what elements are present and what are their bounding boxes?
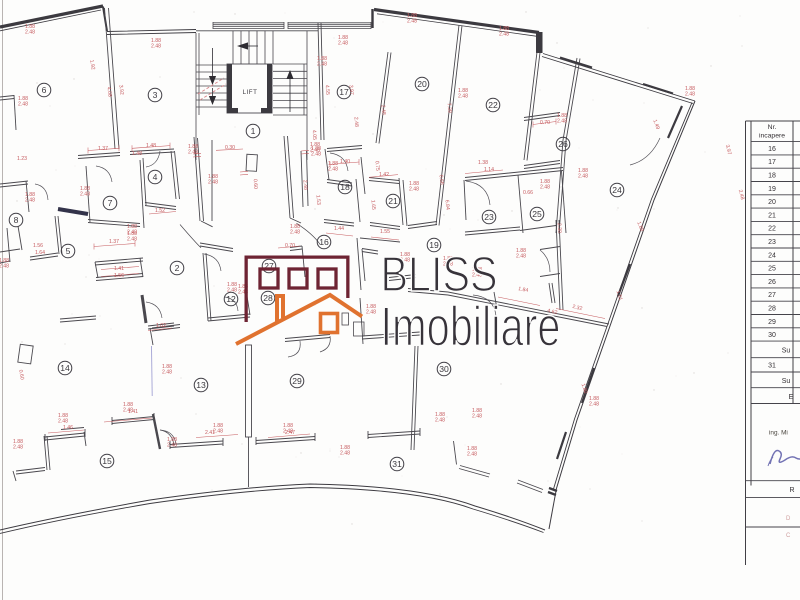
svg-text:4.05: 4.05	[311, 130, 318, 141]
svg-text:2.48: 2.48	[302, 180, 309, 191]
svg-text:3.97: 3.97	[348, 85, 355, 96]
svg-text:2.30: 2.30	[556, 223, 563, 234]
svg-text:1.55: 1.55	[380, 229, 390, 235]
svg-text:2.32: 2.32	[572, 304, 583, 312]
svg-text:0.60: 0.60	[17, 369, 25, 380]
svg-text:1.64: 1.64	[35, 250, 45, 256]
svg-text:8: 8	[14, 215, 19, 225]
svg-text:1.80: 1.80	[580, 383, 589, 395]
svg-text:16: 16	[319, 237, 329, 247]
svg-text:0.66: 0.66	[523, 190, 533, 196]
svg-text:23: 23	[484, 212, 494, 222]
svg-text:1.48: 1.48	[146, 143, 156, 149]
svg-text:2.48: 2.48	[353, 117, 360, 128]
svg-text:1.23: 1.23	[17, 156, 27, 162]
svg-text:17: 17	[339, 87, 349, 97]
svg-text:Su: Su	[782, 348, 791, 355]
svg-text:5: 5	[66, 246, 71, 256]
svg-text:31: 31	[392, 459, 402, 469]
svg-text:4.55: 4.55	[324, 85, 331, 96]
svg-text:R: R	[789, 487, 794, 494]
svg-text:20: 20	[417, 79, 427, 89]
svg-text:21: 21	[388, 196, 398, 206]
svg-text:0.30: 0.30	[225, 145, 235, 151]
svg-text:ing. Mi: ing. Mi	[769, 430, 788, 437]
svg-text:26: 26	[558, 139, 568, 149]
svg-text:1.48: 1.48	[132, 151, 142, 157]
svg-text:1.65: 1.65	[370, 200, 377, 211]
svg-text:2.48: 2.48	[379, 105, 386, 116]
svg-text:16: 16	[768, 146, 776, 153]
svg-text:Nr.: Nr.	[768, 124, 777, 131]
svg-text:29: 29	[768, 319, 776, 326]
svg-text:1.14: 1.14	[484, 167, 494, 173]
svg-text:3: 3	[153, 90, 158, 100]
svg-text:1.92: 1.92	[88, 59, 96, 70]
svg-text:1.49: 1.49	[651, 119, 660, 131]
svg-text:30: 30	[768, 332, 776, 339]
svg-text:1.41: 1.41	[114, 266, 124, 272]
svg-text:1.56: 1.56	[33, 243, 43, 249]
svg-text:2: 2	[175, 263, 180, 273]
svg-text:4.08: 4.08	[105, 86, 112, 97]
svg-text:3.97: 3.97	[724, 144, 732, 155]
svg-text:1.38: 1.38	[478, 160, 488, 166]
svg-text:22: 22	[768, 226, 776, 233]
svg-text:24: 24	[768, 252, 776, 259]
svg-text:0.75: 0.75	[374, 161, 381, 172]
svg-text:27: 27	[768, 292, 776, 299]
svg-text:0.70: 0.70	[285, 243, 295, 249]
svg-text:1.84: 1.84	[518, 286, 529, 294]
svg-text:4: 4	[153, 172, 158, 182]
svg-text:13: 13	[196, 380, 206, 390]
svg-text:26: 26	[768, 279, 776, 286]
svg-text:17: 17	[768, 159, 776, 166]
svg-text:28: 28	[768, 306, 776, 313]
svg-text:7.39: 7.39	[445, 103, 452, 114]
svg-text:18: 18	[340, 182, 350, 192]
svg-text:12: 12	[226, 294, 236, 304]
svg-text:1.44: 1.44	[334, 226, 344, 232]
svg-text:28: 28	[263, 293, 273, 303]
svg-text:1.56: 1.56	[114, 273, 124, 279]
svg-text:25: 25	[768, 266, 776, 273]
svg-text:incapere: incapere	[759, 133, 785, 140]
svg-text:25: 25	[532, 209, 542, 219]
svg-text:Imobiliare: Imobiliare	[381, 295, 561, 358]
svg-text:23: 23	[768, 239, 776, 246]
svg-text:22: 22	[488, 100, 498, 110]
svg-text:1.37: 1.37	[109, 239, 119, 245]
svg-text:0.60: 0.60	[252, 179, 259, 190]
svg-text:6.84: 6.84	[443, 200, 450, 211]
svg-text:31: 31	[768, 363, 776, 370]
svg-text:14: 14	[60, 363, 70, 373]
svg-text:18: 18	[768, 173, 776, 180]
svg-text:C: C	[786, 533, 791, 539]
svg-text:19: 19	[768, 186, 776, 193]
svg-text:E: E	[789, 394, 794, 401]
svg-text:1: 1	[251, 126, 256, 136]
svg-text:1.46: 1.46	[63, 425, 73, 431]
svg-text:24: 24	[612, 185, 622, 195]
svg-text:LIFT: LIFT	[243, 89, 258, 96]
svg-text:21: 21	[768, 212, 776, 219]
svg-text:1.42: 1.42	[379, 172, 389, 178]
svg-text:6: 6	[42, 85, 47, 95]
svg-text:2.41: 2.41	[205, 430, 215, 436]
svg-text:7: 7	[108, 198, 113, 208]
svg-text:15: 15	[102, 456, 112, 466]
svg-text:D: D	[786, 516, 791, 522]
svg-text:1.41: 1.41	[128, 409, 138, 415]
svg-text:3.92: 3.92	[117, 84, 124, 95]
svg-text:0.66: 0.66	[437, 175, 444, 186]
svg-text:1.53: 1.53	[315, 195, 322, 206]
svg-text:1.40: 1.40	[340, 159, 350, 165]
svg-text:20: 20	[768, 199, 776, 206]
svg-text:30: 30	[439, 364, 449, 374]
svg-text:29: 29	[292, 376, 302, 386]
svg-text:1.02: 1.02	[156, 323, 166, 329]
svg-text:Su: Su	[782, 378, 791, 385]
svg-text:2.48: 2.48	[737, 189, 745, 200]
